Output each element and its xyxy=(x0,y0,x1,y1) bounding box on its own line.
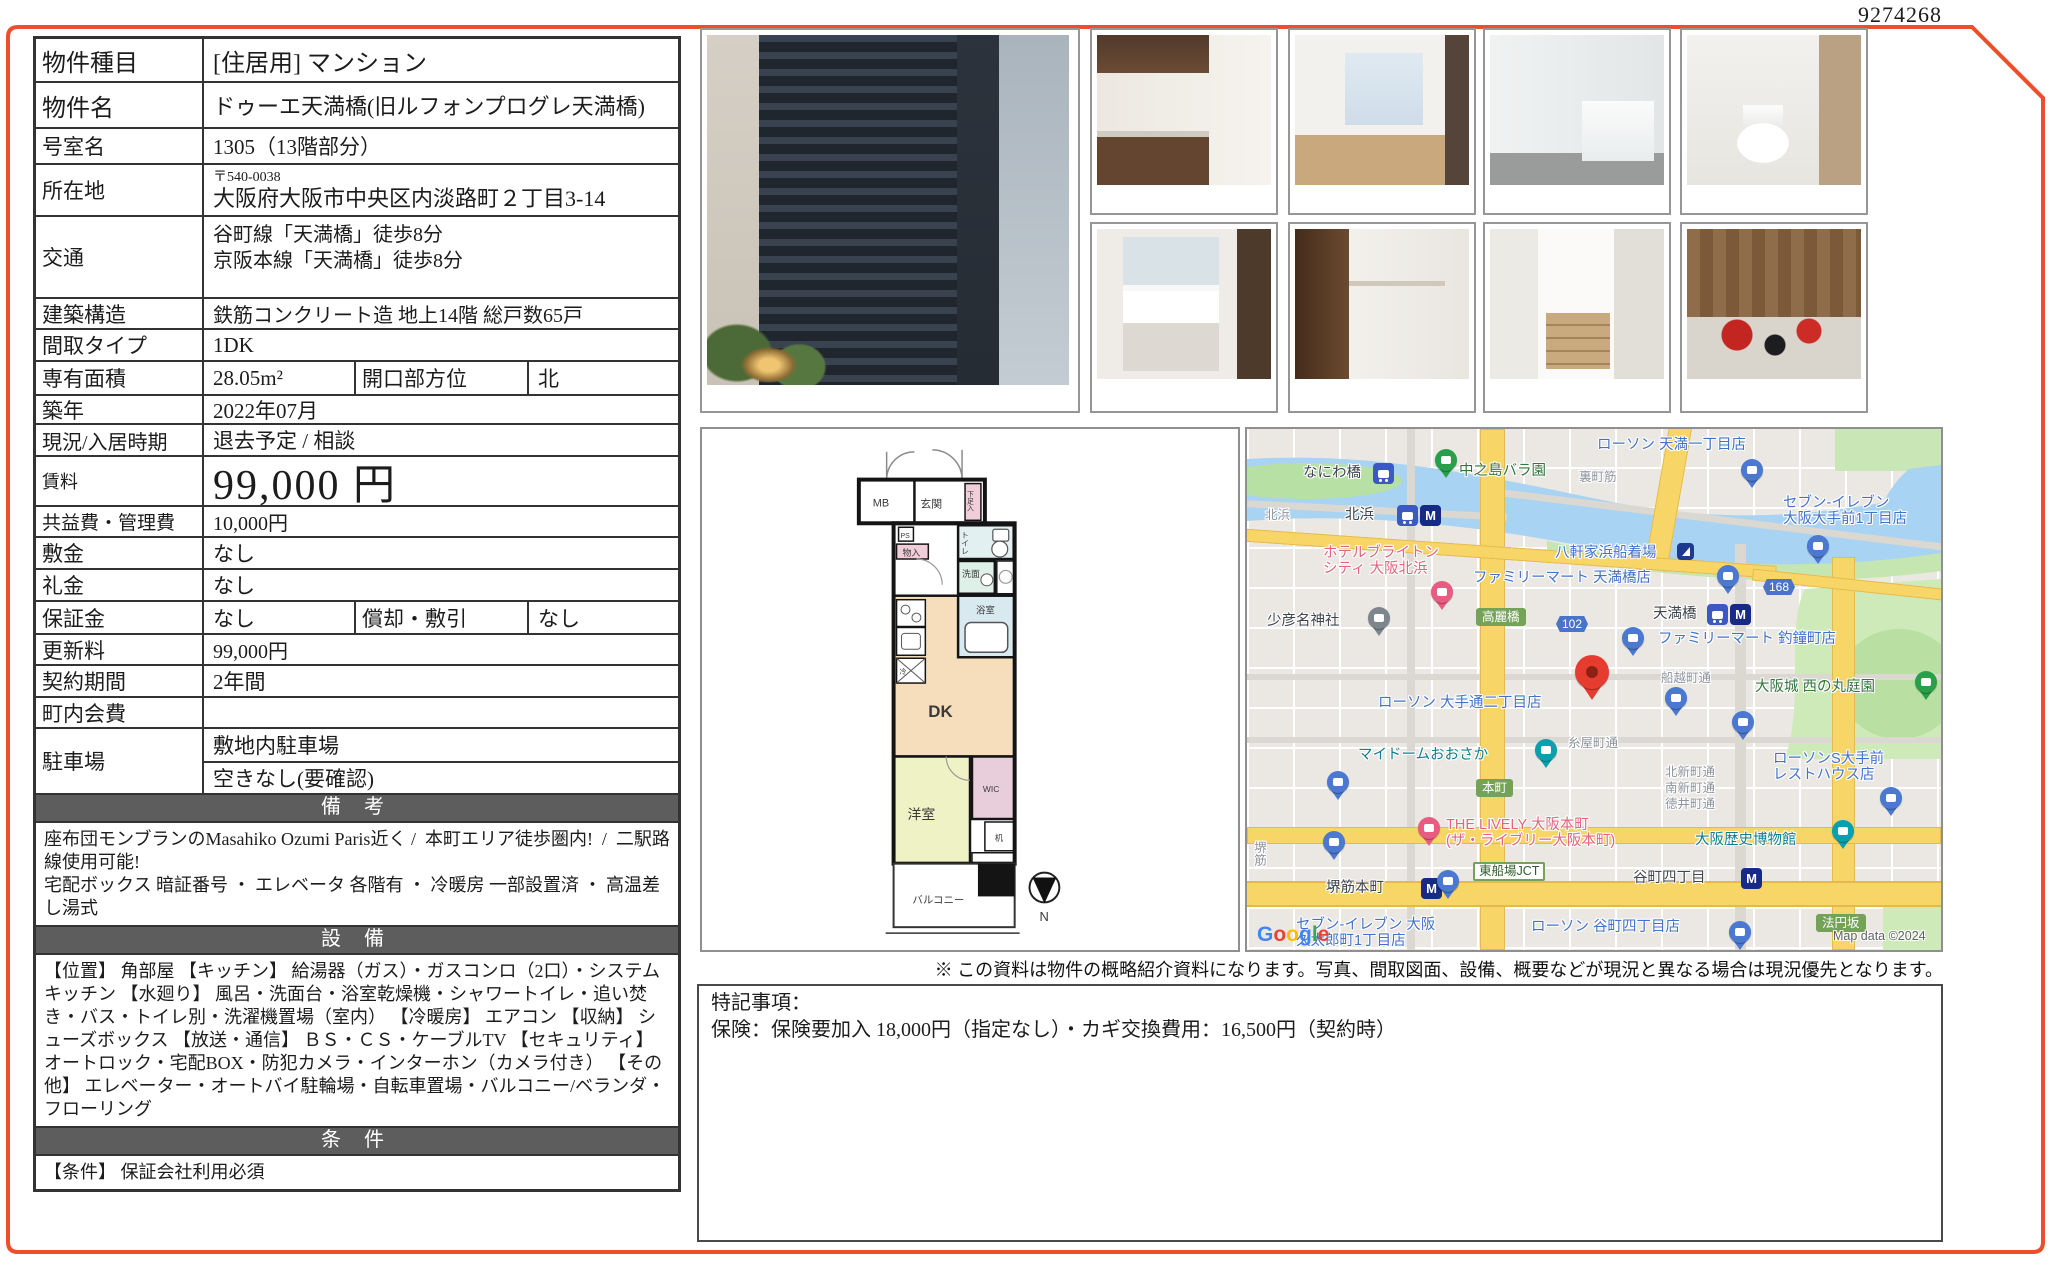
row-value: 10,000円 xyxy=(204,507,678,536)
map-label: 南新町通 xyxy=(1665,780,1715,796)
map-label: 102 xyxy=(1556,616,1588,632)
row-label: 現況/入居時期 xyxy=(36,425,204,455)
map-label: ローソン 大手通二丁目店 xyxy=(1378,695,1542,711)
map-label: 徳井町通 xyxy=(1665,796,1715,812)
map-label: 本町 xyxy=(1476,779,1513,797)
photo-closet xyxy=(1288,222,1476,413)
equipment-header: 設 備 xyxy=(36,927,678,955)
access-line: 京阪本線「天満橋」徒歩8分 xyxy=(213,248,463,274)
google-logo: Google xyxy=(1257,923,1329,947)
property-table: 物件種目 [住居用] マンション 物件名 ドゥーエ天満橋(旧ルフォンプログレ天満… xyxy=(33,36,681,1192)
photo-entrance-steps xyxy=(1483,222,1671,413)
fp-ps-label: PS xyxy=(901,533,911,540)
remarks-text: 座布団モンブランのMasahiko Ozumi Paris近く / 本町エリア徒… xyxy=(36,823,678,927)
map-pin-conv-icon xyxy=(1321,831,1347,867)
fp-bedroom-label: 洋室 xyxy=(907,806,935,822)
row-label: 物件種目 xyxy=(36,39,204,81)
map-label: 裏町筋 xyxy=(1579,469,1617,485)
parking-availability: 空きなし(要確認) xyxy=(204,763,678,793)
map-pin-train-icon xyxy=(1707,604,1728,625)
map-pin-conv-icon xyxy=(1739,459,1765,495)
washbasin-photo xyxy=(1097,229,1271,379)
row-parking: 駐車場 敷地内駐車場 空きなし(要確認) xyxy=(36,729,678,795)
map-pin-conv-icon xyxy=(1730,711,1756,747)
row-label: 契約期間 xyxy=(36,666,204,696)
map-label: 北浜 xyxy=(1345,507,1374,523)
map-pin-hotel-icon xyxy=(1416,817,1442,853)
parking-values: 敷地内駐車場 空きなし(要確認) xyxy=(204,729,678,793)
row-value: なし xyxy=(204,570,678,600)
fp-balcony-label: バルコニー xyxy=(912,894,964,906)
map-pin-train-icon xyxy=(1373,463,1394,484)
photo-lounge xyxy=(1680,222,1868,413)
building-exterior-photo xyxy=(707,35,1069,385)
row-label: 償却・敷引 xyxy=(356,602,529,633)
map-pin-conv-icon xyxy=(1715,565,1741,601)
map-label: 中之島バラ園 xyxy=(1459,463,1546,479)
closet-photo xyxy=(1295,229,1469,379)
row-label: 物件名 xyxy=(36,83,204,127)
row-rent: 賃料 99,000 円 xyxy=(36,457,678,507)
row-value: 〒540-0038 大阪府大阪市中央区内淡路町２丁目3-14 xyxy=(204,165,678,215)
row-label: 駐車場 xyxy=(36,729,204,793)
map-pin-park-icon xyxy=(1433,449,1459,485)
map-label: ファミリーマート 釣鐘町店 xyxy=(1658,631,1836,647)
map-pin-conv-icon xyxy=(1325,771,1351,807)
map-pin-conv-icon xyxy=(1727,921,1753,950)
document-number: 9274268 xyxy=(1858,2,1942,28)
map-pin-civic-icon xyxy=(1830,820,1856,856)
row-value: 28.05m² xyxy=(204,362,356,394)
row-value: 北 xyxy=(529,362,678,394)
map-label: マイドームおおさか xyxy=(1358,747,1488,763)
row-value: 99,000円 xyxy=(204,635,678,664)
row-label: 礼金 xyxy=(36,570,204,600)
row-value: 2022年07月 xyxy=(204,396,678,423)
map-pin-shrine-icon xyxy=(1366,607,1392,643)
map-pin-anchor-icon xyxy=(1677,543,1694,560)
conditions-text: 【条件】 保証会社利用必須 xyxy=(36,1156,678,1189)
row-label: 築年 xyxy=(36,396,204,423)
row-town-fee: 町内会費 xyxy=(36,698,678,729)
postal-code: 〒540-0038 xyxy=(213,170,281,186)
bathroom-photo xyxy=(1490,35,1664,185)
map-label: 大阪城 西の丸庭園 xyxy=(1755,679,1875,695)
special-notes-title: 特記事項： xyxy=(711,990,1929,1017)
row-value: 谷町線「天満橋」徒歩8分 京阪本線「天満橋」徒歩8分 xyxy=(204,217,678,297)
room-photo xyxy=(1295,35,1469,185)
equipment-text: 【位置】 角部屋 【キッチン】 給湯器（ガス）・ガスコンロ（2口）・システムキッ… xyxy=(36,955,678,1128)
row-address: 所在地 〒540-0038 大阪府大阪市中央区内淡路町２丁目3-14 xyxy=(36,165,678,217)
row-access: 交通 谷町線「天満橋」徒歩8分 京阪本線「天満橋」徒歩8分 xyxy=(36,217,678,299)
entrance-steps-photo xyxy=(1490,229,1664,379)
map-label: 八軒家浜船着場 xyxy=(1555,545,1657,561)
row-key-money: 礼金 なし xyxy=(36,570,678,602)
row-value: なし xyxy=(204,602,356,633)
photo-room xyxy=(1288,28,1476,215)
row-label: 間取タイプ xyxy=(36,330,204,360)
fp-dk-label: DK xyxy=(928,702,953,721)
map-label: 船越町通 xyxy=(1661,670,1711,686)
access-line: 谷町線「天満橋」徒歩8分 xyxy=(213,222,443,248)
fp-bath-label: 浴室 xyxy=(976,605,995,616)
row-room-no: 号室名 1305（13階部分） xyxy=(36,129,678,165)
row-property-name: 物件名 ドゥーエ天満橋(旧ルフォンプログレ天満橋) xyxy=(36,83,678,129)
map-pin-hotel-icon xyxy=(1429,581,1455,617)
row-value: なし xyxy=(204,538,678,568)
row-guarantee: 保証金 なし 償却・敷引 なし xyxy=(36,602,678,635)
row-value: [住居用] マンション xyxy=(204,39,678,81)
row-label: 号室名 xyxy=(36,129,204,163)
row-value: ドゥーエ天満橋(旧ルフォンプログレ天満橋) xyxy=(204,83,678,127)
map-label: ホテルブライトン シティ 大阪北浜 xyxy=(1323,545,1439,577)
map-pin-park-icon xyxy=(1913,671,1939,707)
photo-washbasin xyxy=(1090,222,1278,413)
map-pin-train-icon xyxy=(1397,505,1418,526)
map-label: 谷町四丁目 xyxy=(1633,870,1706,886)
row-label: 保証金 xyxy=(36,602,204,633)
row-structure: 建築構造 鉄筋コンクリート造 地上14階 総戸数65戸 xyxy=(36,299,678,330)
conditions-header: 条 件 xyxy=(36,1128,678,1156)
special-notes-box: 特記事項： 保険：保険要加入 18,000円（指定なし）・カギ交換費用：16,5… xyxy=(697,984,1943,1242)
map-label: セブン-イレブン 大阪大手前1丁目店 xyxy=(1783,495,1907,527)
row-label: 更新料 xyxy=(36,635,204,664)
map-label: ローソン 谷町四丁目店 xyxy=(1531,919,1680,935)
map-pin-metro-icon xyxy=(1741,868,1762,889)
map-pin-dest-icon xyxy=(1573,655,1611,710)
map-panel: Google Map data ©2024 ローソン 天満一丁目店なにわ橋中之島… xyxy=(1245,427,1943,952)
fp-fridge-label: 冷 xyxy=(900,667,907,676)
fp-entrance-label: 玄関 xyxy=(920,496,942,510)
map-label: 糸屋町通 xyxy=(1568,735,1618,751)
map-label: 天満橋 xyxy=(1653,606,1697,622)
address-text: 大阪府大阪市中央区内淡路町２丁目3-14 xyxy=(213,186,605,211)
map-label: ファミリーマート 天満橋店 xyxy=(1473,570,1651,586)
map-pin-conv-icon xyxy=(1620,627,1646,663)
map-label: THE LIVELY 大阪本町 (ザ・ライブリー大阪本町) xyxy=(1446,817,1615,849)
fp-mb-label: MB xyxy=(873,497,889,509)
map-label: ローソン 天満一丁目店 xyxy=(1597,437,1746,453)
row-label: 所在地 xyxy=(36,165,204,215)
map-pin-conv-icon xyxy=(1663,687,1689,723)
special-notes-body: 保険：保険要加入 18,000円（指定なし）・カギ交換費用：16,500円（契約… xyxy=(711,1017,1929,1044)
row-fees: 共益費・管理費 10,000円 xyxy=(36,507,678,538)
row-label: 町内会費 xyxy=(36,698,204,727)
map-pin-conv-icon xyxy=(1878,787,1904,823)
row-contract-term: 契約期間 2年間 xyxy=(36,666,678,698)
map-canvas: Google Map data ©2024 ローソン 天満一丁目店なにわ橋中之島… xyxy=(1247,429,1941,950)
photo-bathroom xyxy=(1483,28,1671,215)
row-value xyxy=(204,698,678,727)
fp-toilet-label: トイレ xyxy=(961,531,970,555)
row-property-type: 物件種目 [住居用] マンション xyxy=(36,39,678,83)
map-label: 高麗橋 xyxy=(1476,608,1526,626)
photo-toilet xyxy=(1680,28,1868,215)
map-pin-conv-icon xyxy=(1805,535,1831,571)
photo-kitchen xyxy=(1090,28,1278,215)
fp-storage-label: 物入 xyxy=(903,547,921,558)
floorplan-drawing: MB 玄関 下足入 PS 物入 トイレ 洗面 浴室 冷 DK 洋室 WIC 机 … xyxy=(702,429,1238,950)
map-pin-conv-icon xyxy=(1435,870,1461,906)
row-label: 敷金 xyxy=(36,538,204,568)
toilet-photo xyxy=(1687,35,1861,185)
row-value: なし xyxy=(529,602,678,633)
lounge-photo xyxy=(1687,229,1861,379)
fp-washroom-label: 洗面 xyxy=(962,568,980,579)
map-label: 大阪歴史博物館 xyxy=(1695,832,1797,848)
row-value: 1305（13階部分） xyxy=(204,129,678,163)
floorplan-panel: MB 玄関 下足入 PS 物入 トイレ 洗面 浴室 冷 DK 洋室 WIC 机 … xyxy=(700,427,1240,952)
row-label: 専有面積 xyxy=(36,362,204,394)
row-value: 鉄筋コンクリート造 地上14階 総戸数65戸 xyxy=(204,299,678,328)
row-label: 開口部方位 xyxy=(356,362,529,394)
row-value: 1DK xyxy=(204,330,678,360)
kitchen-photo xyxy=(1097,35,1271,185)
main-photo xyxy=(700,28,1080,413)
map-label: 北浜 xyxy=(1265,507,1290,523)
map-label: 168 xyxy=(1763,579,1795,595)
map-label: なにわ橋 xyxy=(1303,465,1361,481)
map-pin-metro-icon xyxy=(1730,604,1751,625)
map-attribution: Map data ©2024 xyxy=(1833,929,1926,943)
row-label: 共益費・管理費 xyxy=(36,507,204,536)
row-area-direction: 専有面積 28.05m² 開口部方位 北 xyxy=(36,362,678,396)
map-pin-metro-icon xyxy=(1420,505,1441,526)
map-label: ローソンS大手前 レストハウス店 xyxy=(1773,751,1884,783)
map-label: 東船場JCT xyxy=(1473,862,1545,881)
map-label: 堺筋本町 xyxy=(1326,880,1384,896)
map-label: 堺筋 xyxy=(1251,841,1267,866)
parking-type: 敷地内駐車場 xyxy=(204,729,678,763)
fp-desk-label: 机 xyxy=(995,833,1004,843)
map-label: 北新町通 xyxy=(1665,764,1715,780)
row-value: 2年間 xyxy=(204,666,678,696)
row-label: 賃料 xyxy=(36,457,204,505)
fp-north-label: N xyxy=(1039,909,1048,924)
map-label: 少彦名神社 xyxy=(1267,613,1340,629)
remarks-header: 備 考 xyxy=(36,795,678,823)
disclaimer-note: ※ この資料は物件の概略紹介資料になります。写真、間取図面、設備、概要などが現況… xyxy=(830,956,1943,982)
row-built-year: 築年 2022年07月 xyxy=(36,396,678,425)
fp-wic-label: WIC xyxy=(983,784,999,794)
rent-amount: 99,000 円 xyxy=(204,457,678,505)
row-deposit: 敷金 なし xyxy=(36,538,678,570)
row-layout-type: 間取タイプ 1DK xyxy=(36,330,678,362)
row-label: 交通 xyxy=(36,217,204,297)
row-renewal-fee: 更新料 99,000円 xyxy=(36,635,678,666)
row-label: 建築構造 xyxy=(36,299,204,328)
map-pin-civic-icon xyxy=(1533,739,1559,775)
